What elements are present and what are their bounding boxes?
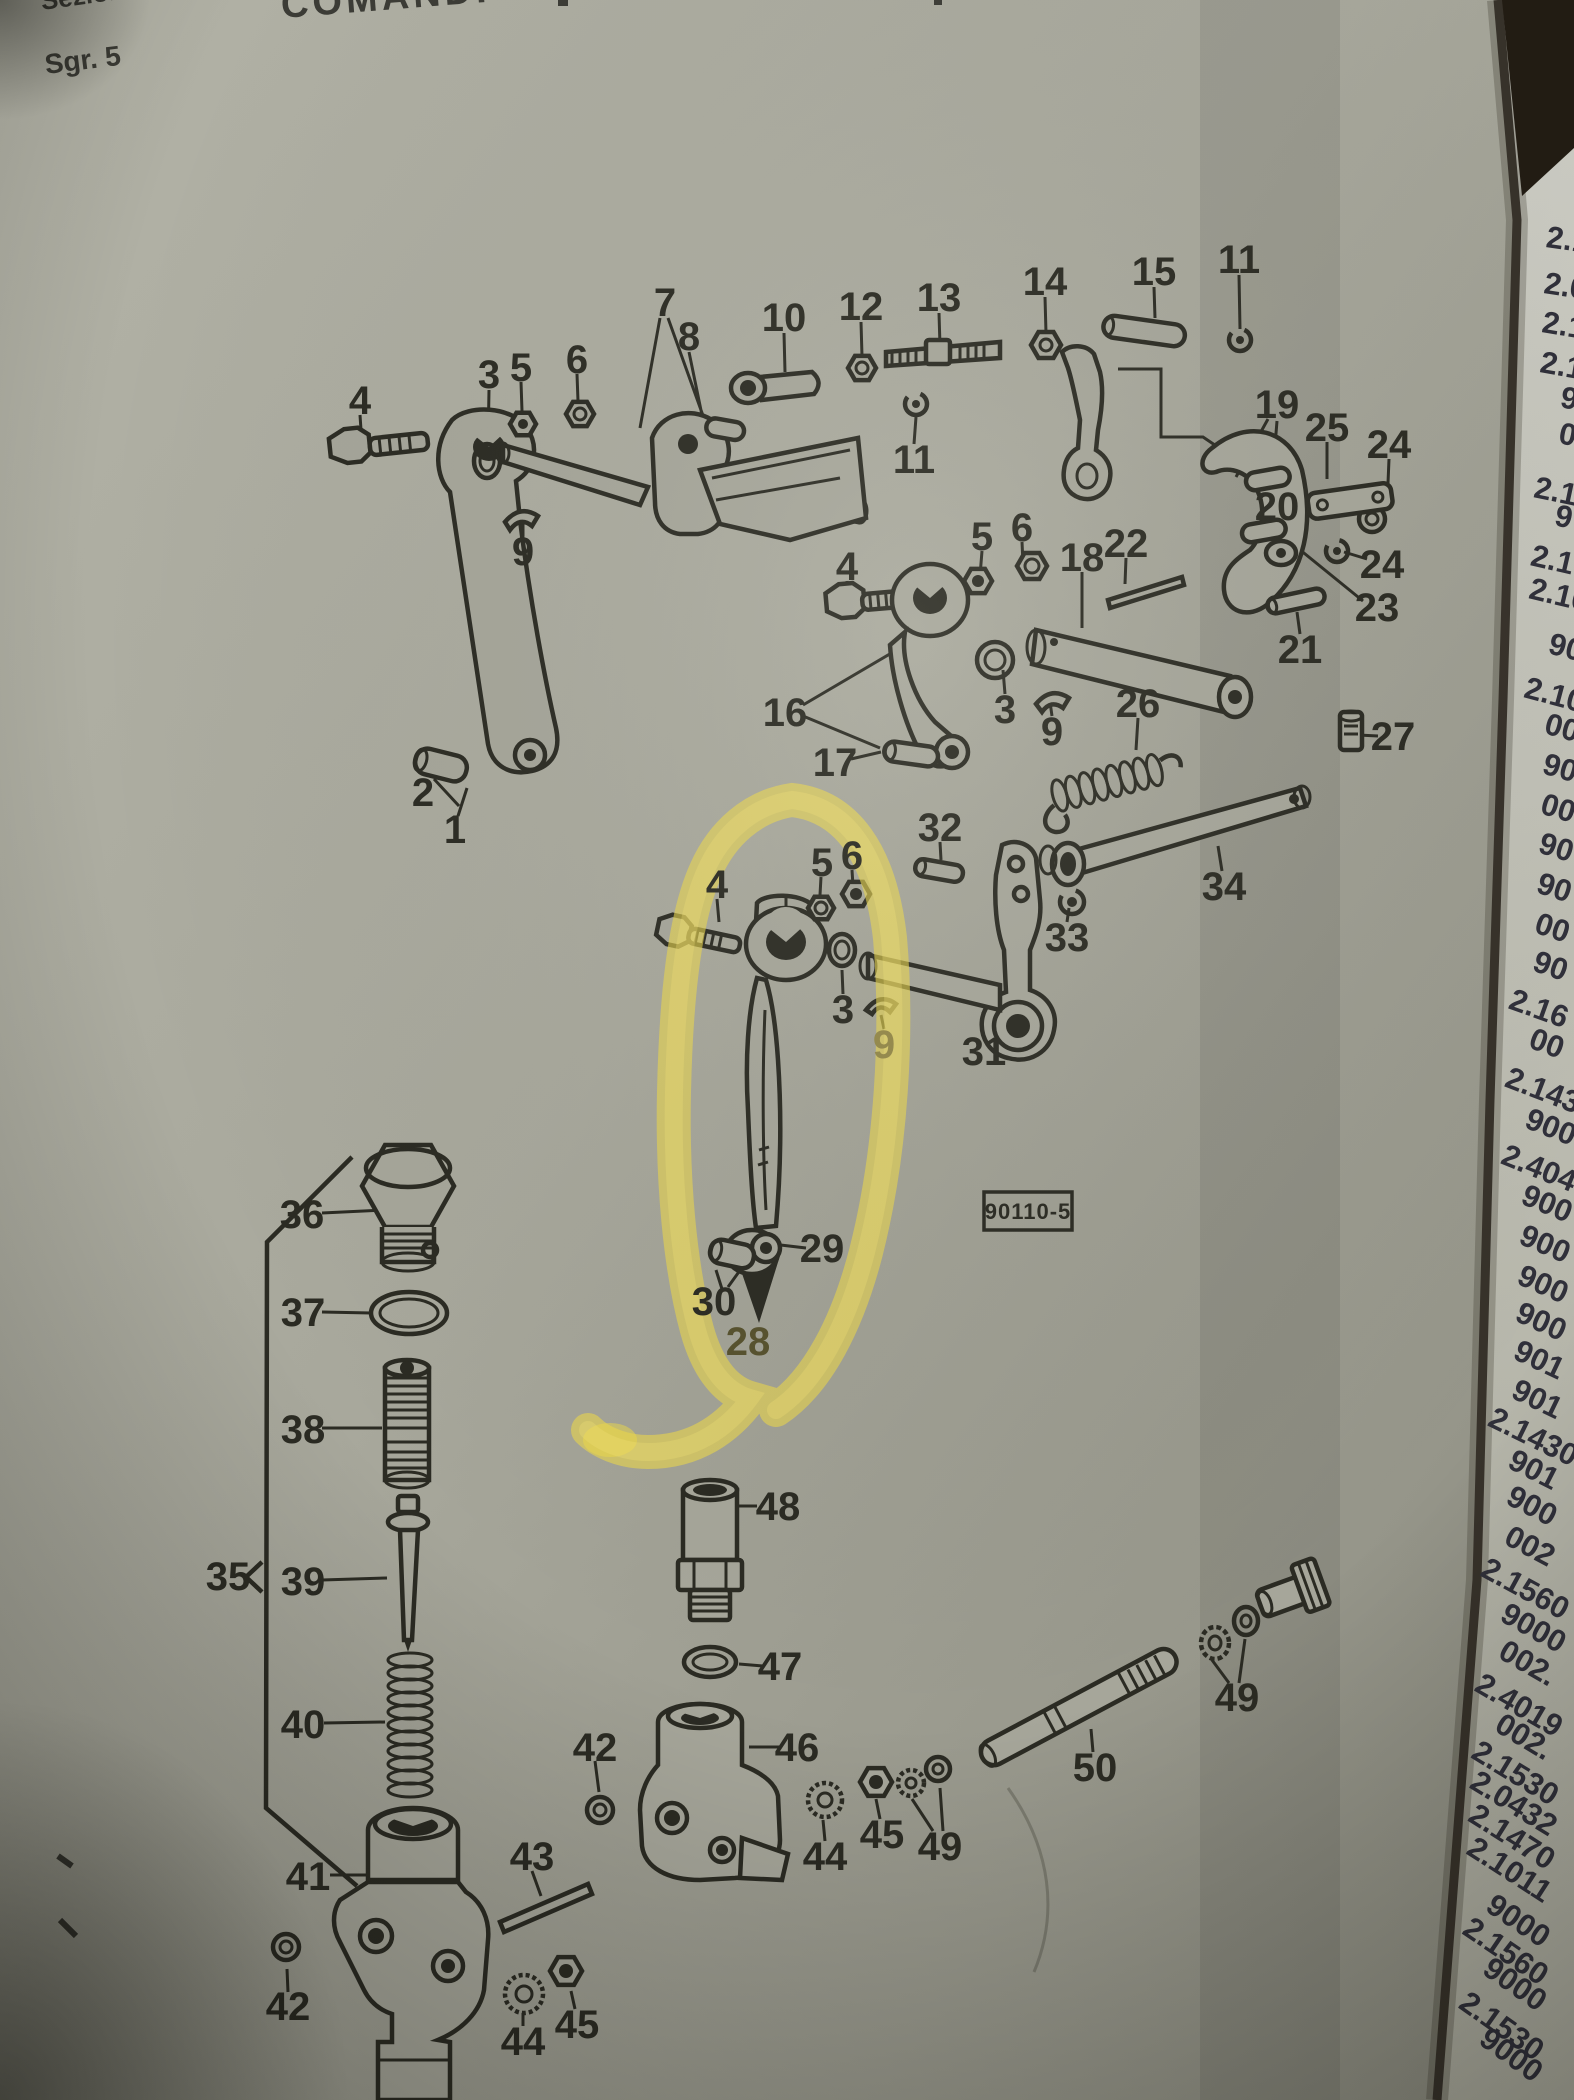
catalog-page-photo: 2.12.02.12.1902.192.12.10902.10009000909…	[0, 0, 1574, 2100]
diagram-canvas: 2.12.02.12.1902.192.12.10902.10009000909…	[0, 0, 1574, 2100]
photo-lighting	[0, 0, 1574, 2100]
